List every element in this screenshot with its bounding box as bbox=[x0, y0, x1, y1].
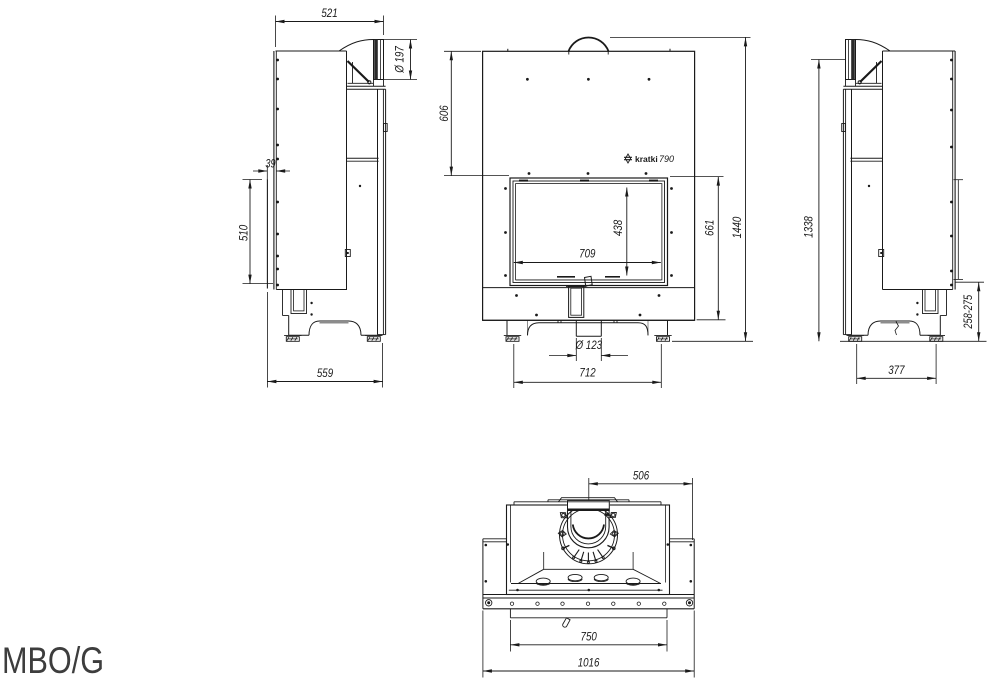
svg-text:258-275: 258-275 bbox=[963, 294, 975, 329]
svg-text:377: 377 bbox=[888, 363, 905, 377]
svg-text:712: 712 bbox=[579, 365, 595, 379]
svg-text:510: 510 bbox=[236, 225, 250, 241]
svg-text:506: 506 bbox=[633, 468, 649, 482]
svg-text:Ø 123: Ø 123 bbox=[575, 338, 603, 352]
svg-text:1016: 1016 bbox=[578, 656, 600, 670]
svg-text:1338: 1338 bbox=[801, 216, 815, 238]
svg-text:750: 750 bbox=[581, 629, 597, 643]
svg-text:559: 559 bbox=[317, 366, 333, 380]
svg-text:438: 438 bbox=[611, 220, 625, 236]
svg-text:1440: 1440 bbox=[730, 216, 744, 238]
svg-text:Ø 197: Ø 197 bbox=[393, 45, 407, 73]
svg-text:606: 606 bbox=[437, 105, 451, 121]
svg-text:709: 709 bbox=[579, 247, 595, 261]
svg-text:790: 790 bbox=[659, 154, 674, 164]
svg-text:kratki: kratki bbox=[635, 154, 658, 164]
svg-text:661: 661 bbox=[703, 220, 717, 236]
svg-text:521: 521 bbox=[321, 6, 337, 20]
svg-text:MBO/G: MBO/G bbox=[2, 640, 104, 681]
